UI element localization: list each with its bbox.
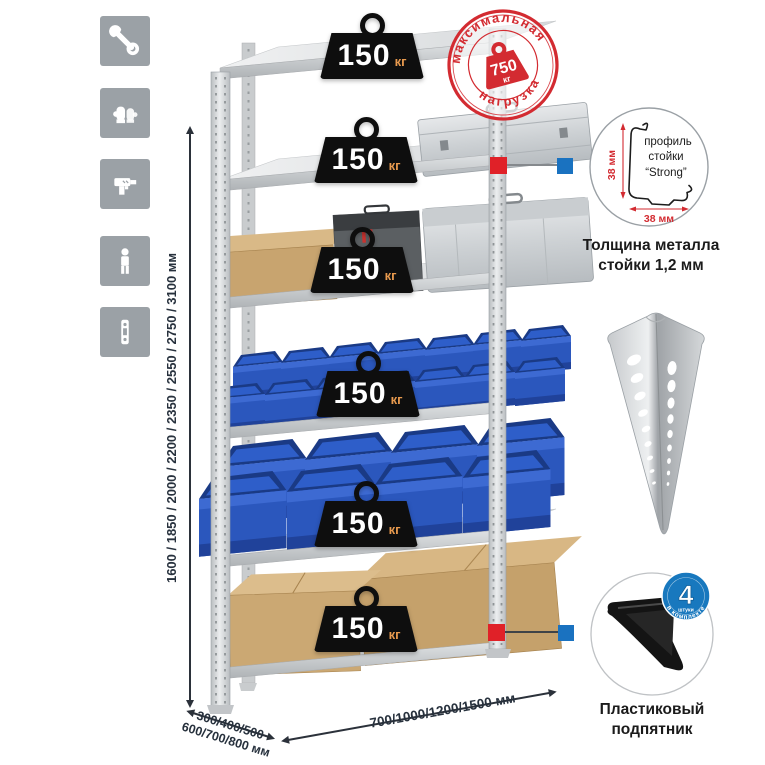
gloves-icon (100, 88, 150, 138)
load-badge-shelf-2: 150кг (314, 117, 418, 183)
profile-text-line3: “Strong” (645, 167, 687, 179)
rack-foot-plate (239, 683, 257, 691)
load-badge-shelf-4: 150кг (316, 351, 420, 417)
height-dimension-line (189, 133, 191, 701)
max-load-stamp: максимальная нагрузка 750 кг (444, 6, 562, 124)
load-badge-shelf-3: 150кг (310, 227, 414, 293)
drill-icon (100, 159, 150, 209)
load-badge-shelf-1: 150кг (320, 13, 424, 79)
profile-dim-vertical: 38 мм (606, 150, 618, 180)
post-marker-red-bottom (488, 624, 505, 641)
badge-word: штуки (678, 608, 694, 614)
callout-line-top (507, 164, 559, 166)
detail-marker-blue-bottom (558, 625, 574, 641)
height-options-label: 1600 / 1850 / 2000 / 2200 / 2350 / 2550 … (164, 118, 180, 718)
product-infographic: 1600 / 1850 / 2000 / 2200 / 2350 / 2550 … (0, 0, 765, 765)
load-badge-shelf-5: 150кг (314, 481, 418, 547)
rack-post-front-left (207, 72, 234, 714)
detail-marker-blue-top (557, 158, 573, 174)
post-marker-red-top (490, 157, 507, 174)
foot-caption: Пластиковый подпятник (578, 700, 726, 740)
load-badge-shelf-6: 150кг (314, 586, 418, 652)
callout-line-bottom (505, 631, 560, 633)
profile-dim-horizontal: 38 мм (644, 213, 674, 225)
plastic-foot-detail: 4 штуки в комплекте (588, 566, 726, 706)
profile-caption: Толщина металла стойки 1,2 мм (572, 236, 730, 276)
badge-count: 4 (678, 580, 693, 610)
angle-post-image (596, 298, 726, 543)
profile-text-line2: стойки (648, 151, 683, 163)
post-profile-detail: 38 мм 38 мм профиль стойки “Strong” (583, 103, 715, 235)
wrench-icon (100, 16, 150, 66)
profile-text-line1: профиль (644, 136, 692, 148)
person-icon (100, 236, 150, 286)
rack-post-icon (100, 307, 150, 357)
included-count-badge: 4 штуки в комплекте (662, 572, 710, 621)
